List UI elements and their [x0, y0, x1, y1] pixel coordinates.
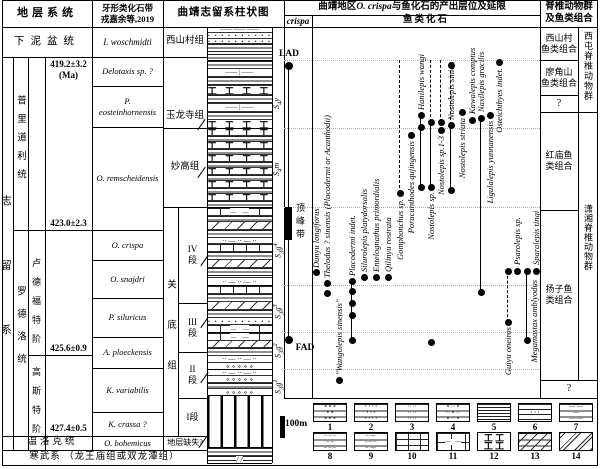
age-label-425: 425.6±0.9	[45, 343, 92, 354]
cell-wenlock-series: 温洛克统	[13, 436, 92, 450]
stratigraphic-level-gridline	[284, 369, 540, 370]
fish-occurrence-dot	[408, 132, 415, 139]
fish-range-dashed-line	[507, 271, 508, 322]
fish-occurrence-dot	[459, 109, 466, 116]
legend-number: 3	[395, 422, 429, 432]
legend-number: 11	[436, 451, 470, 461]
fish-range-line	[526, 271, 527, 340]
conodont-zone-cell: Delotaxis sp. ?	[92, 57, 163, 86]
header-conodont-zones: 牙形类化石带 戎嘉余等,2019	[92, 0, 163, 27]
litho-bed-yulongsi	[207, 111, 272, 119]
unit-code-label: S4y	[272, 98, 284, 109]
assemblage-cell-yangzi: 扬子鱼 类组合	[540, 210, 578, 380]
litho-bed-guandi-3	[207, 293, 272, 301]
litho-bed-miaogao	[207, 167, 272, 174]
fish-species-label: Dunyu longiforus	[311, 208, 321, 268]
fish-species-label: Thelodus ? sinensis (Placodermi or Acant…	[322, 115, 332, 278]
fish-occurrence-dot	[487, 112, 494, 119]
stratigraphic-correlation-figure: 地层系统 牙形类化石带 戎嘉余等,2019 曲靖志留系柱状图 曲靖地区O. cr…	[0, 0, 600, 469]
grid-line	[92, 298, 163, 299]
litho-bed-guandi-2	[207, 362, 272, 369]
grid-line	[540, 112, 598, 113]
header-fauna-assemblage: 脊椎动物群 及鱼类组合	[540, 0, 598, 27]
legend-number: 7	[559, 422, 593, 432]
litho-bed-guandi-4	[207, 207, 272, 215]
assemblage-cell-question-lower: ?	[540, 380, 598, 398]
legend-pattern-shale-lines	[477, 403, 511, 422]
fish-occurrence-dot	[385, 274, 392, 281]
legend-pattern-circle-dash	[436, 403, 470, 422]
fish-species-label: Entelognathus primordialis	[371, 179, 381, 272]
grid-line	[13, 57, 14, 450]
litho-bed-cambrian	[207, 447, 272, 455]
conodont-zone-cell: I. woschmidti	[92, 27, 163, 57]
fish-occurrence-dot	[313, 269, 320, 276]
legend-pattern-circles-lines	[313, 403, 347, 422]
conodont-zone-cell: P. siluricus	[92, 298, 163, 337]
litho-bed-guandi-2	[207, 332, 272, 340]
fish-occurrence-dot	[428, 119, 435, 126]
legend-pattern-short-dashes	[313, 432, 347, 451]
grid-line	[207, 463, 272, 464]
header-column-title: 曲靖志留系柱状图	[163, 0, 284, 27]
grid-line	[540, 95, 578, 96]
fish-species-label: Osteichthyes indet.	[494, 68, 504, 133]
grid-line	[2, 436, 207, 437]
litho-bed-guandi-4	[207, 251, 272, 259]
assemblage-cell-question-upper: ?	[540, 95, 578, 112]
member-cell-i: I段	[178, 398, 207, 436]
age-label-427: 427.4±0.5	[45, 423, 92, 434]
subheader-crispa: crispa	[284, 15, 312, 27]
fish-species-label: Silurolepis platydorsalis	[359, 189, 369, 272]
litho-bed-guandi-2	[207, 340, 272, 347]
grid-line	[92, 368, 163, 369]
header-conodont-line1: 牙形类化石带	[102, 3, 153, 13]
acme-zone-label: 顶峰带	[295, 203, 307, 249]
litho-bed-guandi-4	[207, 277, 272, 285]
grid-line	[28, 355, 92, 356]
legend-number: 14	[559, 451, 593, 461]
fish-range-dashed-line	[440, 60, 441, 122]
crispa-fad-dot	[285, 336, 293, 344]
fish-occurrence-dot	[505, 268, 512, 275]
member-cell-iii: III段	[178, 303, 207, 352]
grid-line	[92, 86, 163, 87]
column-ludfordian-stage: 卢德福特阶	[31, 230, 43, 355]
legend-number: 8	[313, 451, 347, 461]
legend-number: 6	[518, 422, 552, 432]
legend-number: 10	[395, 451, 429, 461]
unit-code-label: S4m	[272, 163, 284, 176]
unit-code-label: S3g4	[272, 243, 285, 258]
member-label-i: I段	[187, 412, 199, 423]
legend-number: 13	[518, 451, 552, 461]
grid-line	[284, 15, 540, 16]
fad-label: FAD	[291, 343, 319, 354]
litho-bed-guandi-2	[207, 355, 272, 362]
fish-species-label: Gomphonchus sp.	[395, 199, 405, 260]
fish-occurrence-dot	[438, 127, 445, 134]
litho-bed-guandi-4	[207, 221, 272, 229]
litho-bed-yulongsi	[207, 94, 272, 103]
legend-number: 1	[313, 422, 347, 432]
litho-bed-miaogao	[207, 141, 272, 148]
legend-pattern-diagonal-dash	[518, 432, 552, 451]
member-cell-ii: II段	[178, 352, 207, 398]
fish-range-line	[480, 118, 481, 292]
fish-occurrence-dot	[505, 319, 512, 326]
occurrence-title-pre: 曲靖地区	[318, 2, 356, 13]
litho-bed-guandi-4	[207, 229, 272, 237]
stratigraphic-level-gridline	[284, 285, 540, 286]
legend-number: 5	[477, 422, 511, 432]
fish-occurrence-dot	[336, 377, 343, 384]
litho-bed-yulongsi	[207, 76, 272, 85]
fish-occurrence-dot	[418, 112, 425, 119]
legend-pattern-dash-pairs	[559, 403, 593, 422]
fish-species-label: Nostolepis striata	[457, 118, 467, 178]
grid-line	[13, 230, 163, 231]
fish-occurrence-dot	[514, 268, 521, 275]
litho-bed-guandi-3	[207, 317, 272, 324]
litho-bed-guandi-1	[207, 375, 272, 382]
cell-cambrian-row: 寒武系 （龙王庙组或双龙潭组）	[2, 450, 207, 466]
litho-bed-yulongsi	[207, 85, 272, 94]
fish-species-label: "Wangolepis sinensis"	[334, 299, 344, 375]
legend-number: 12	[477, 451, 511, 461]
member-label-ii: II段	[186, 364, 200, 385]
grid-line	[45, 57, 46, 450]
litho-bed-guandi-3	[207, 309, 272, 317]
unit-code-label: S3g3	[272, 304, 285, 319]
fish-occurrence-dot	[349, 300, 356, 307]
grid-line	[284, 398, 598, 399]
occurrence-title-species: O. crispa	[356, 2, 391, 13]
grid-line	[163, 0, 164, 450]
fish-species-label: Sparalepis tingi	[531, 211, 541, 265]
fish-range-dashed-line	[430, 60, 431, 122]
column-pridoli-series: 普里道利统	[15, 57, 27, 230]
grid-line	[178, 352, 207, 353]
fish-species-label: Guiyu oneiros	[503, 327, 513, 375]
lithologic-column	[207, 27, 272, 463]
fish-occurrence-dot	[349, 312, 356, 319]
lad-label: LAD	[272, 49, 306, 60]
formation-cell-xishancun: 西山村组	[163, 27, 207, 57]
litho-bed-guandi-3	[207, 324, 272, 332]
header-occurrence-title: 曲靖地区O. crispa与鱼化石的产出层位及延限	[284, 0, 540, 15]
fish-species-label: Nostolepis sp.1-3	[436, 136, 446, 195]
grid-line	[578, 27, 579, 380]
fish-occurrence-dot	[478, 289, 485, 296]
conodont-zone-cell: O. remscheidensis	[92, 127, 163, 230]
fish-occurrence-dot	[418, 184, 425, 191]
crispa-range-line	[288, 66, 289, 340]
header-strat-system: 地层系统	[2, 0, 92, 27]
litho-bed-miaogao	[207, 193, 272, 200]
fish-occurrence-dot	[469, 117, 476, 124]
litho-bed-yulongsi	[207, 60, 272, 68]
fish-occurrence-dot	[448, 187, 455, 194]
legend-pattern-limestone-brick	[395, 432, 429, 451]
litho-bed-miaogao	[207, 180, 272, 187]
grid-line	[92, 412, 163, 413]
legend-pattern-bioclastic-limestone	[477, 432, 511, 451]
member-label-iii: III段	[185, 317, 201, 338]
fish-species-label: Ligulalepis yunnanensis	[485, 121, 495, 203]
fish-occurrence-dot	[349, 337, 356, 344]
conodont-zone-cell: O. crispa	[92, 230, 163, 260]
grid-line	[178, 398, 207, 399]
litho-bed-yulongsi	[207, 103, 272, 111]
fish-occurrence-dot	[361, 274, 368, 281]
fish-occurrence-dot	[324, 280, 331, 287]
conodont-zone-cell: O. snajdri	[92, 260, 163, 298]
formation-cell-yulongsi: 玉龙寺组	[163, 57, 207, 128]
legend-pattern-dots-lines	[354, 403, 388, 422]
grid-line	[92, 0, 93, 450]
unit-code-label: S3g2	[272, 343, 285, 358]
legend-pattern-argillaceous-limestone	[436, 432, 470, 451]
formation-cell-miaogao: 妙高组	[163, 128, 207, 207]
litho-bed-miaogao	[207, 200, 272, 207]
litho-bed-guandi-4	[207, 267, 272, 277]
litho-bed-missing	[207, 395, 272, 447]
grid-line	[163, 207, 207, 208]
conodont-zone-cell: O. bohemicus	[92, 436, 163, 450]
conodont-zone-cell: K. crassa ?	[92, 412, 163, 436]
crispa-acme-bar	[285, 207, 292, 240]
fish-occurrence-dot	[373, 274, 380, 281]
age-label-423: 423.0±2.3	[45, 218, 92, 229]
grid-line	[92, 127, 163, 128]
legend-pattern-dash-dots	[395, 403, 429, 422]
fish-range-line	[430, 122, 431, 187]
legend-number: 4	[436, 422, 470, 432]
fish-species-label: Poracanthodes qujingensis	[406, 141, 416, 233]
assemblage-cell-xishancun: 西山村 鱼类组合	[540, 27, 578, 60]
grid-line	[2, 57, 207, 58]
fish-range-line	[450, 125, 451, 190]
header-conodont-line2: 戎嘉余等,2019	[101, 14, 154, 24]
grid-line	[540, 60, 578, 61]
occurrence-title-post: 与鱼化石的产出层位及延限	[392, 2, 506, 13]
legend-number: 9	[354, 451, 388, 461]
litho-bed-miaogao	[207, 128, 272, 135]
legend-pattern-double-diagonal	[559, 432, 593, 451]
litho-bed-miaogao	[207, 154, 272, 161]
fish-occurrence-dot	[428, 339, 435, 346]
fish-occurrence-dot	[448, 122, 455, 129]
fish-occurrence-dot	[496, 59, 503, 66]
fauna-cell-xiaoxiang: 潇湘脊椎动物群	[582, 112, 595, 380]
fish-species-label: Naxilepis gracilis	[476, 52, 486, 112]
grid-line	[163, 128, 207, 129]
formation-cell-guandi: 关底组	[165, 207, 177, 436]
fish-occurrence-dot	[428, 184, 435, 191]
fish-occurrence-dot	[438, 119, 445, 126]
age-label-419: 419.2±3.2 (Ma)	[45, 58, 92, 82]
grid-line	[2, 27, 598, 28]
litho-bed-cambrian	[207, 455, 272, 463]
fish-occurrence-dot	[478, 115, 485, 122]
litho-bed-yulongsi	[207, 119, 272, 128]
fish-occurrence-dot	[324, 290, 331, 297]
grid-line	[540, 380, 598, 381]
fish-occurrence-dot	[524, 268, 531, 275]
legend-pattern-dash-hooks	[354, 432, 388, 451]
column-silurian-system: 志留系	[2, 57, 13, 450]
grid-line	[540, 210, 578, 211]
fish-occurrence-dot	[397, 190, 404, 197]
fish-species-label: Nostolepis sp.	[426, 192, 436, 240]
litho-bed-yulongsi	[207, 68, 272, 76]
grid-line	[207, 27, 208, 463]
litho-bed-guandi-2	[207, 347, 272, 355]
cell-lower-devonian: 下泥盆统	[2, 27, 92, 57]
grid-line	[178, 207, 179, 436]
grid-line	[92, 337, 163, 338]
grid-line	[28, 57, 29, 450]
conodont-zone-cell: P. eosteinhornensis	[92, 86, 163, 127]
unit-code-label: S3g1	[272, 379, 285, 394]
crispa-lad-dot	[285, 62, 293, 70]
fish-species-label: Megamastax amblyodus	[529, 280, 539, 362]
fish-occurrence-dot	[349, 288, 356, 295]
grid-line	[92, 260, 163, 261]
column-ludlow-series: 罗德洛统	[15, 230, 27, 450]
fish-occurrence-dot	[349, 278, 356, 285]
grid-line	[2, 450, 207, 451]
fish-species-label: Psarolepis sp.	[512, 217, 522, 265]
member-cell-iv: IV段	[178, 207, 207, 303]
litho-bed-guandi-3	[207, 285, 272, 293]
legend-pattern-silty-shale	[518, 403, 552, 422]
conodont-zone-cell: K. variabilis	[92, 368, 163, 412]
fish-species-label: Hanilepis wangi	[416, 54, 426, 110]
fish-species-label: Placodermi indet.	[347, 215, 357, 276]
fish-occurrence-dot	[418, 124, 425, 131]
fish-range-dashed-line	[399, 60, 400, 193]
assemblage-cell-hongmiao: 红庙鱼 类组合	[540, 112, 578, 210]
conodont-zone-cell: A. ploeckensis	[92, 337, 163, 368]
litho-bed-guandi-3	[207, 301, 272, 309]
fauna-cell-xitun: 西屯脊椎动物群	[582, 27, 595, 112]
member-label-iv: IV段	[185, 244, 201, 265]
fish-occurrence-dot	[533, 268, 540, 275]
assemblage-cell-liaojiaoshan: 廖角山 鱼类组合	[540, 60, 578, 95]
grid-line	[178, 303, 207, 304]
litho-bed-guandi-4	[207, 243, 272, 251]
litho-bed-guandi-4	[207, 259, 272, 267]
stratigraphic-level-gridline	[284, 332, 540, 333]
fish-species-label: Nostolepis sinica	[446, 62, 456, 120]
subheader-fish-fossils: 鱼类化石	[312, 15, 540, 27]
legend-number: 2	[354, 422, 388, 432]
litho-bed-xishancun	[207, 43, 272, 60]
litho-bed-guandi-1	[207, 388, 272, 395]
fish-species-label: Qilinyu rostrata	[383, 217, 393, 272]
